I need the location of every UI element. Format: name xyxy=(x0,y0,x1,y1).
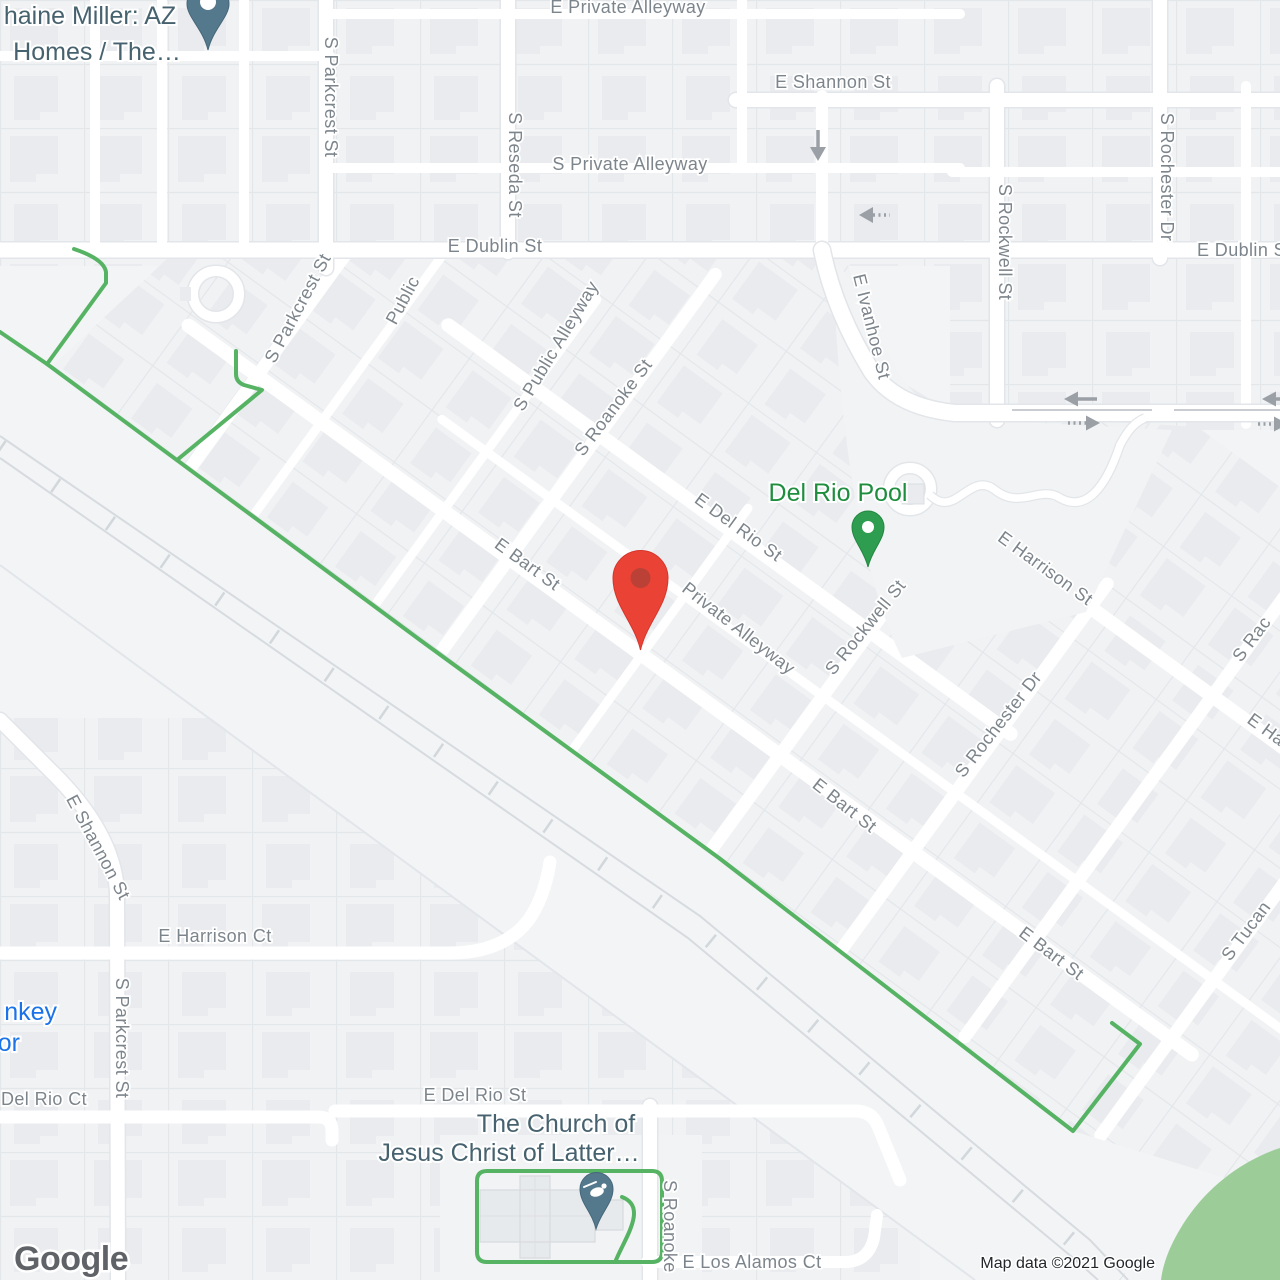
street-label-del-rio-ct: Del Rio Ct xyxy=(1,1089,87,1109)
poi-label-del-rio-pool[interactable]: Del Rio Pool xyxy=(769,479,908,507)
poi-label-topleft-line2[interactable]: Homes / The… xyxy=(13,38,181,66)
street-label-s-parkcrest-st-top: S Parkcrest St xyxy=(321,37,341,158)
map-canvas: E Private Alleyway E Shannon St S Privat… xyxy=(0,0,1280,1280)
street-label-e-del-rio-st-bottom: E Del Rio St xyxy=(424,1085,527,1105)
street-label-e-shannon-st-top: E Shannon St xyxy=(775,72,891,92)
poi-label-topleft-line1[interactable]: haine Miller: AZ xyxy=(4,2,176,30)
street-label-s-roanoke-bottom: S Roanoke xyxy=(660,1180,680,1273)
map-data-attribution: Map data ©2021 Google xyxy=(980,1255,1155,1272)
poi-label-church-line1[interactable]: The Church of xyxy=(477,1110,635,1138)
street-label-e-los-alamos-ct: E Los Alamos Ct xyxy=(682,1252,821,1272)
street-label-s-reseda-st: S Reseda St xyxy=(505,112,525,217)
poi-label-church-line2[interactable]: Jesus Christ of Latter… xyxy=(378,1139,639,1167)
google-map[interactable]: E Private Alleyway E Shannon St S Privat… xyxy=(0,0,1280,1280)
poi-label-blue-line1[interactable]: nkey xyxy=(4,998,57,1026)
street-label-e-private-alleyway: E Private Alleyway xyxy=(550,0,705,17)
street-label-s-parkcrest-st-bottom: S Parkcrest St xyxy=(112,978,132,1099)
poi-label-blue-line2[interactable]: or xyxy=(0,1029,20,1057)
street-label-s-private-alleyway: S Private Alleyway xyxy=(552,154,707,174)
google-logo[interactable]: Google xyxy=(14,1240,128,1278)
street-label-e-harrison-ct: E Harrison Ct xyxy=(158,926,271,946)
street-label-s-rochester-dr-top: S Rochester Dr xyxy=(1157,113,1177,242)
street-label-s-rockwell-st-top: S Rockwell St xyxy=(995,184,1015,300)
street-label-e-dublin-st: E Dublin St xyxy=(448,236,542,256)
street-label-e-dublin-st-right: E Dublin St xyxy=(1197,240,1280,260)
